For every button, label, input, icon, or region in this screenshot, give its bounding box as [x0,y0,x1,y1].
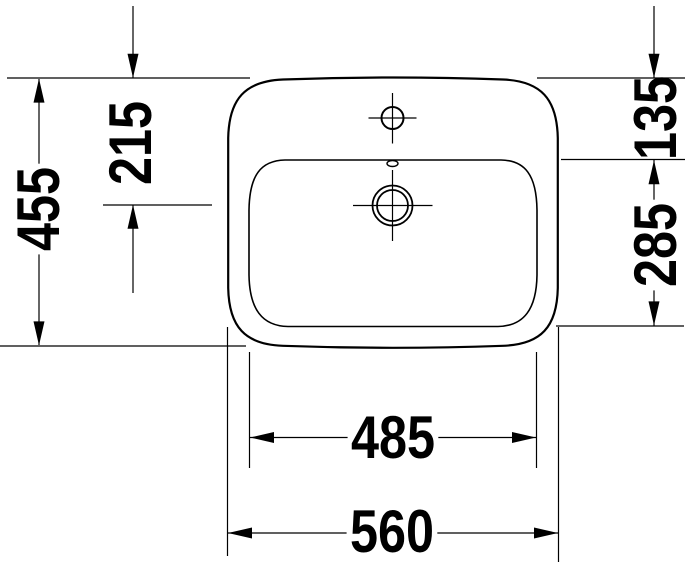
dim-label-560: 560 [347,502,438,562]
dim-135-line [649,6,660,78]
washbasin-technical-drawing: 455 215 135 285 485 560 [0,0,688,567]
dim-label-285: 285 [626,200,686,291]
dim-label-455: 455 [9,164,69,255]
dim-label-215: 215 [101,98,161,189]
overflow-slot-icon [387,161,398,167]
dim-label-485: 485 [348,408,439,468]
dim-label-135: 135 [626,73,686,164]
drawing-geometry [0,0,688,567]
